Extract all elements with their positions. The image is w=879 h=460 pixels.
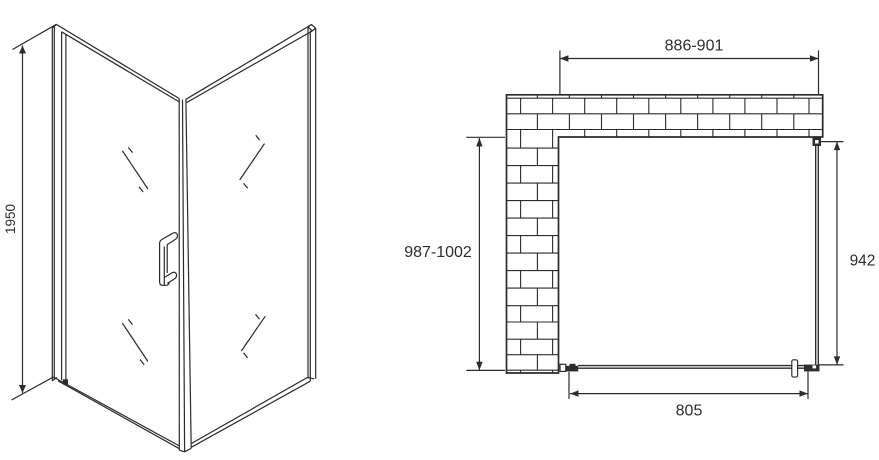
svg-text:1950: 1950	[3, 204, 18, 234]
svg-text:886-901: 886-901	[665, 38, 724, 55]
svg-text:987-1002: 987-1002	[404, 244, 472, 261]
svg-text:805: 805	[676, 403, 703, 420]
svg-text:942: 942	[850, 253, 876, 270]
